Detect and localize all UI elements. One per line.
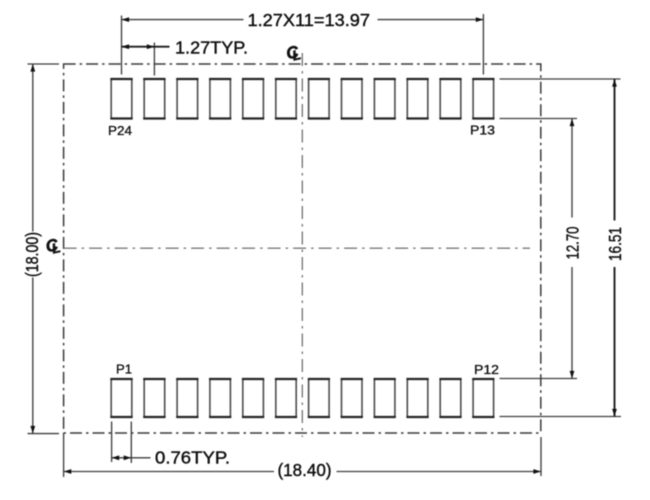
svg-text:P12: P12 — [474, 362, 499, 377]
svg-text:1.27TYP.: 1.27TYP. — [175, 38, 248, 58]
svg-text:P13: P13 — [470, 123, 495, 138]
svg-text:(18.00): (18.00) — [22, 232, 42, 277]
svg-text:12.70: 12.70 — [562, 226, 582, 259]
svg-text:P1: P1 — [116, 362, 132, 377]
svg-text:P24: P24 — [108, 123, 132, 138]
svg-text:(18.40): (18.40) — [278, 460, 332, 480]
svg-text:0.76TYP.: 0.76TYP. — [155, 448, 230, 468]
svg-text:16.51: 16.51 — [605, 227, 625, 261]
svg-text:1.27X11=13.97: 1.27X11=13.97 — [248, 10, 371, 30]
